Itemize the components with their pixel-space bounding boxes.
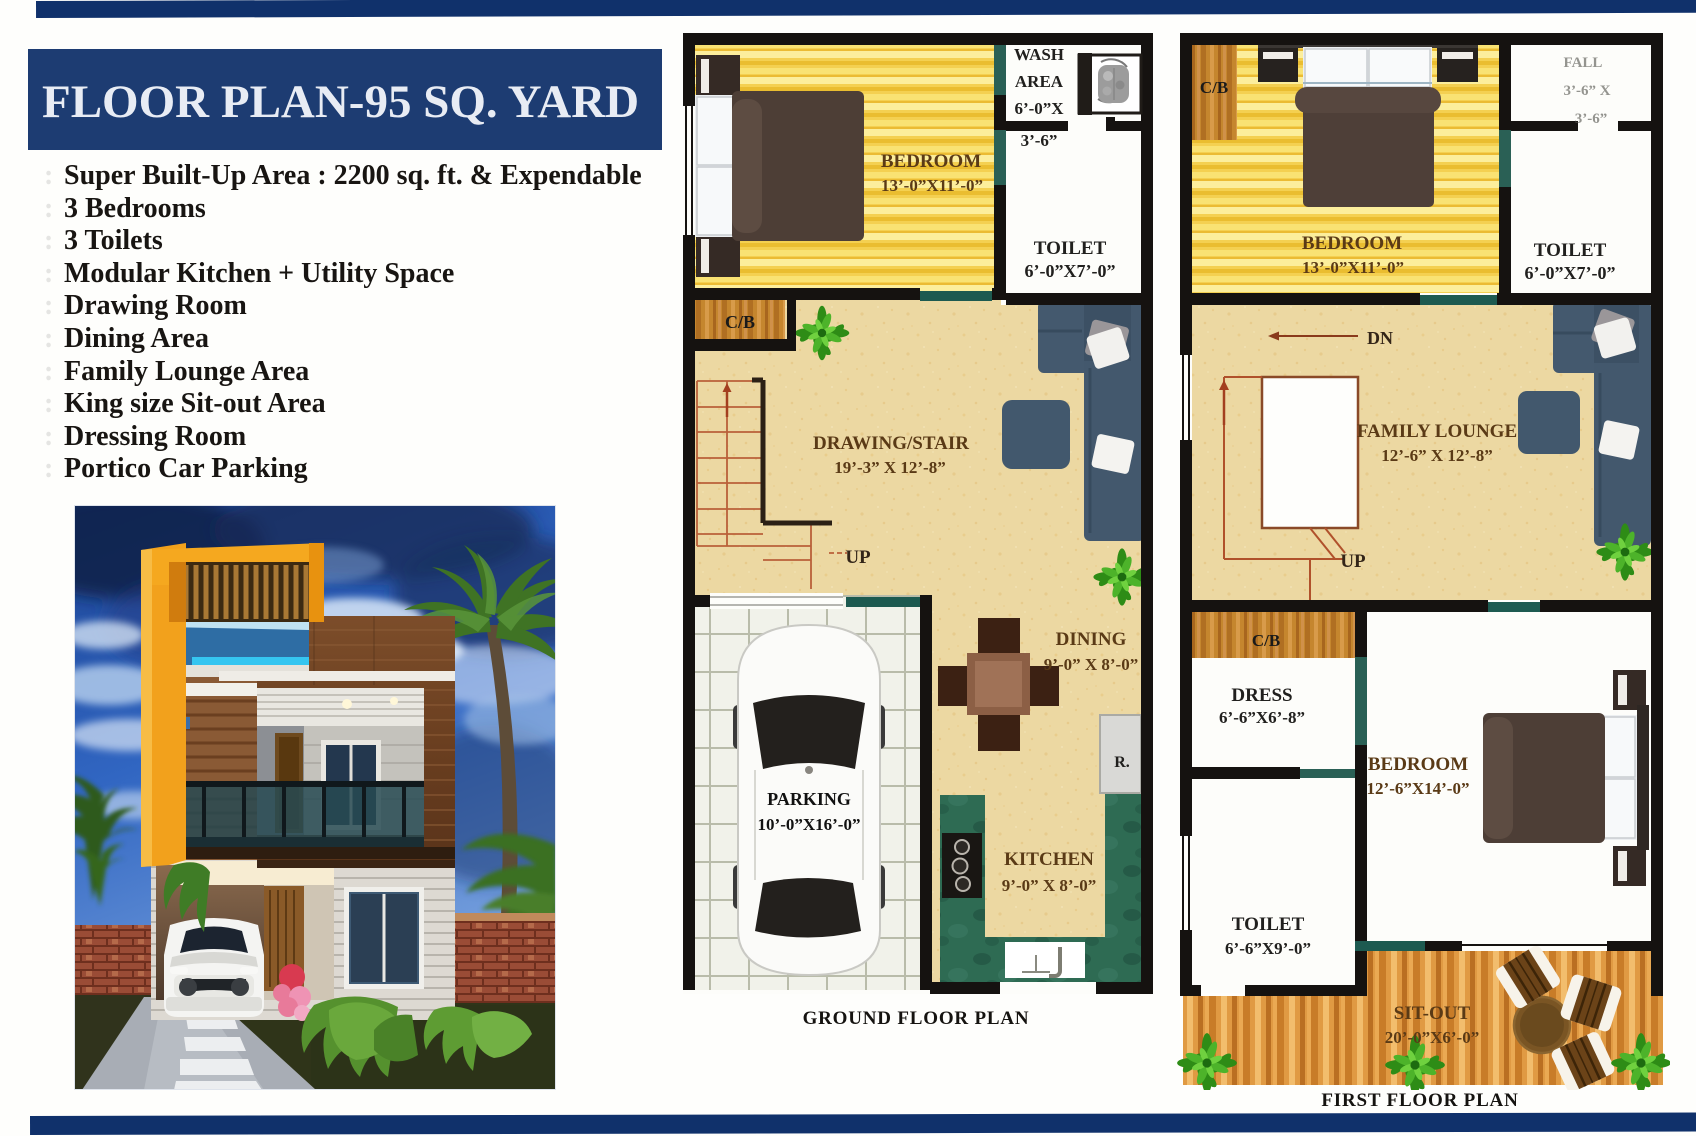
svg-text:3’-6”: 3’-6” bbox=[1021, 131, 1058, 150]
svg-text:TOILET: TOILET bbox=[1034, 238, 1107, 259]
svg-text:C/B: C/B bbox=[1252, 631, 1280, 650]
svg-text:13’-0”X11’-0”: 13’-0”X11’-0” bbox=[881, 176, 983, 195]
svg-text:TOILET: TOILET bbox=[1534, 240, 1607, 261]
svg-text:3’-6” X: 3’-6” X bbox=[1563, 83, 1610, 99]
svg-text:PARKING: PARKING bbox=[767, 789, 851, 809]
svg-text:6’-0”X7’-0”: 6’-0”X7’-0” bbox=[1025, 261, 1116, 281]
svg-text:UP: UP bbox=[845, 547, 871, 568]
svg-text:9’-0” X 8’-0”: 9’-0” X 8’-0” bbox=[1044, 655, 1138, 674]
svg-text:6’-0”X: 6’-0”X bbox=[1014, 99, 1064, 118]
svg-text:SIT-OUT: SIT-OUT bbox=[1394, 1003, 1471, 1024]
svg-text:BEDROOM: BEDROOM bbox=[1302, 233, 1402, 254]
svg-text:FAMILY LOUNGE: FAMILY LOUNGE bbox=[1357, 421, 1517, 442]
svg-text:6’-0”X7’-0”: 6’-0”X7’-0” bbox=[1525, 263, 1616, 283]
svg-text:WASH: WASH bbox=[1014, 45, 1064, 64]
svg-text:R.: R. bbox=[1114, 754, 1130, 771]
svg-text:C/B: C/B bbox=[1200, 78, 1228, 97]
svg-text:DRAWING/STAIR: DRAWING/STAIR bbox=[813, 433, 969, 454]
svg-text:C/B: C/B bbox=[725, 312, 755, 332]
svg-text:DINING: DINING bbox=[1056, 629, 1127, 650]
svg-text:20’-0”X6’-0”: 20’-0”X6’-0” bbox=[1385, 1028, 1479, 1047]
svg-text:9’-0” X 8’-0”: 9’-0” X 8’-0” bbox=[1002, 876, 1096, 895]
svg-text:AREA: AREA bbox=[1015, 72, 1064, 91]
svg-text:KITCHEN: KITCHEN bbox=[1004, 849, 1094, 870]
svg-text:12’-6”X14’-0”: 12’-6”X14’-0” bbox=[1367, 779, 1470, 798]
svg-text:3’-6”: 3’-6” bbox=[1575, 111, 1608, 127]
svg-text:DRESS: DRESS bbox=[1231, 685, 1292, 706]
svg-text:DN: DN bbox=[1367, 328, 1393, 348]
svg-text:UP: UP bbox=[1340, 551, 1366, 572]
svg-text:BEDROOM: BEDROOM bbox=[1368, 754, 1468, 775]
svg-text:19’-3” X 12’-8”: 19’-3” X 12’-8” bbox=[834, 458, 945, 477]
svg-text:10’-0”X16’-0”: 10’-0”X16’-0” bbox=[758, 815, 861, 834]
svg-text:13’-0”X11’-0”: 13’-0”X11’-0” bbox=[1302, 258, 1404, 277]
svg-text:FALL: FALL bbox=[1564, 55, 1603, 71]
svg-text:6’-6”X6’-8”: 6’-6”X6’-8” bbox=[1219, 708, 1305, 727]
svg-text:BEDROOM: BEDROOM bbox=[881, 151, 981, 172]
svg-text:6’-6”X9’-0”: 6’-6”X9’-0” bbox=[1225, 939, 1311, 958]
svg-text:TOILET: TOILET bbox=[1232, 914, 1305, 935]
svg-text:12’-6” X 12’-8”: 12’-6” X 12’-8” bbox=[1381, 446, 1492, 465]
